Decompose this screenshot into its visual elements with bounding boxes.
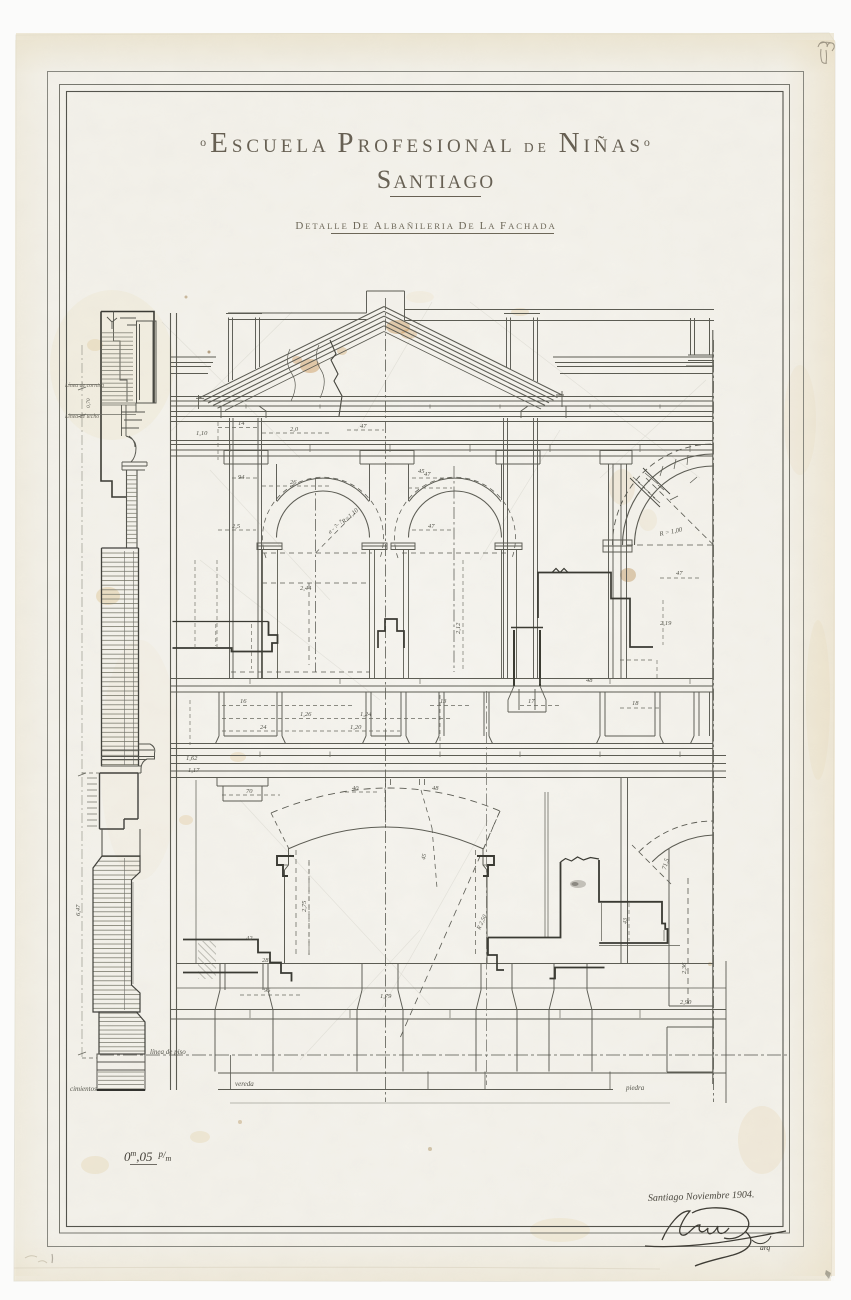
svg-text:28: 28: [262, 957, 269, 964]
svg-text:0,70: 0,70: [86, 398, 92, 408]
svg-text:1,17: 1,17: [188, 767, 200, 774]
svg-text:47: 47: [360, 423, 367, 430]
svg-text:1,24: 1,24: [360, 711, 372, 718]
svg-text:40: 40: [352, 785, 359, 792]
svg-text:2,36: 2,36: [681, 962, 688, 974]
svg-text:2,44: 2,44: [300, 585, 312, 592]
svg-text:42: 42: [246, 935, 253, 942]
svg-text:94: 94: [238, 474, 245, 481]
svg-text:piedra: piedra: [625, 1084, 645, 1092]
svg-text:48: 48: [586, 677, 593, 684]
svg-text:43: 43: [622, 918, 629, 924]
svg-text:70: 70: [246, 788, 253, 795]
svg-text:2,5: 2,5: [232, 523, 241, 530]
svg-text:26: 26: [290, 479, 297, 486]
svg-text:14: 14: [238, 420, 245, 427]
svg-text:2,90: 2,90: [680, 999, 692, 1006]
svg-text:DETALLE DE ALBAÑILERIA DE LA F: DETALLE DE ALBAÑILERIA DE LA FACHADA: [295, 220, 556, 232]
svg-text:18: 18: [632, 700, 639, 707]
svg-text:45: 45: [418, 468, 425, 475]
svg-text:1,62: 1,62: [186, 755, 198, 762]
svg-text:17: 17: [528, 698, 535, 705]
svg-text:1,26: 1,26: [300, 711, 312, 718]
svg-text:24: 24: [260, 724, 267, 731]
svg-text:95: 95: [264, 987, 271, 994]
svg-text:1,20: 1,20: [350, 724, 362, 731]
svg-text:47: 47: [424, 471, 431, 478]
svg-text:Línea de cornisa: Línea de cornisa: [64, 383, 104, 389]
svg-text:1,10: 1,10: [196, 430, 208, 437]
svg-text:16: 16: [240, 698, 247, 705]
svg-text:13: 13: [440, 698, 447, 705]
svg-text:cimientos: cimientos: [70, 1085, 97, 1093]
svg-text:6,47: 6,47: [75, 904, 82, 916]
svg-text:arq: arq: [760, 1243, 770, 1252]
svg-text:línea de piso: línea de piso: [150, 1048, 186, 1056]
svg-text:vereda: vereda: [235, 1080, 254, 1088]
svg-text:2,75: 2,75: [301, 900, 308, 912]
svg-text:2,12: 2,12: [455, 622, 462, 634]
svg-text:2,0: 2,0: [290, 426, 299, 433]
svg-text:Línea de techo: Línea de techo: [64, 414, 99, 420]
svg-text:47: 47: [428, 523, 435, 530]
svg-text:48: 48: [432, 785, 439, 792]
svg-text:2,19: 2,19: [660, 620, 672, 627]
svg-text:47: 47: [676, 570, 683, 577]
